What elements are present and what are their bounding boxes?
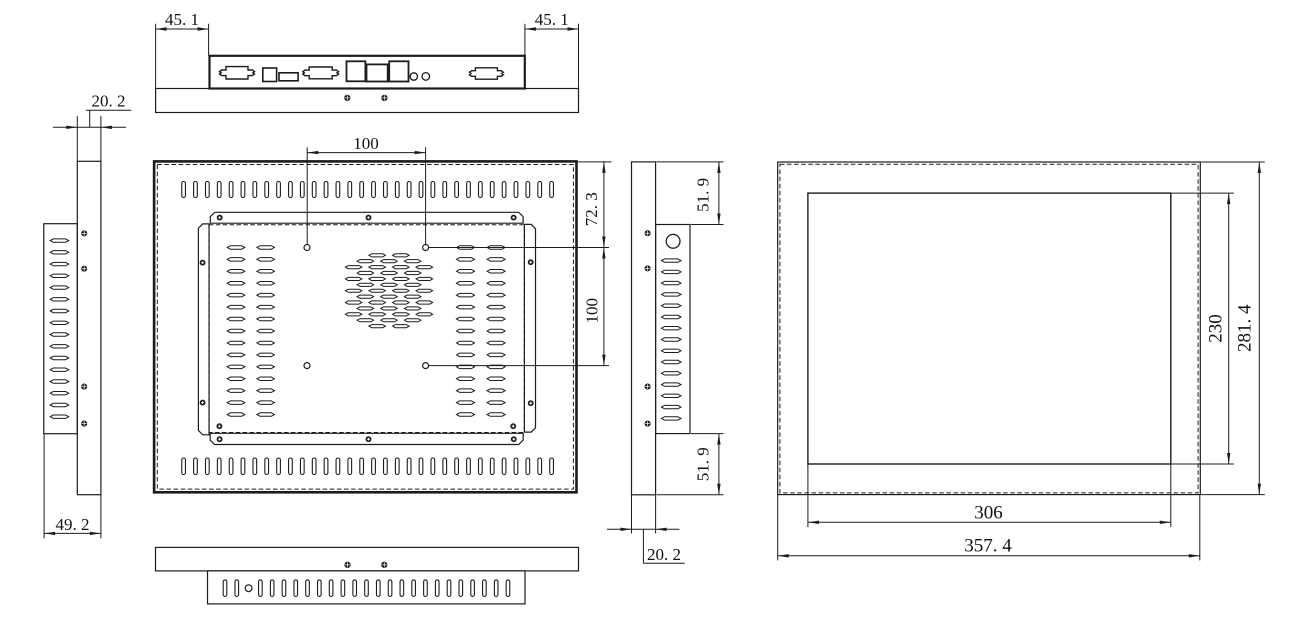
svg-text:20. 2: 20. 2 [92, 92, 126, 111]
svg-text:100: 100 [583, 298, 602, 324]
svg-text:72. 3: 72. 3 [582, 192, 601, 226]
svg-text:20. 2: 20. 2 [647, 545, 681, 564]
svg-text:45. 1: 45. 1 [535, 10, 569, 29]
svg-text:230: 230 [1206, 314, 1227, 343]
svg-text:49. 2: 49. 2 [56, 515, 90, 534]
svg-text:100: 100 [353, 134, 379, 153]
svg-text:51. 9: 51. 9 [694, 178, 713, 212]
svg-text:45. 1: 45. 1 [165, 10, 199, 29]
svg-text:51. 9: 51. 9 [694, 447, 713, 481]
svg-text:357. 4: 357. 4 [964, 536, 1012, 557]
svg-text:281. 4: 281. 4 [1235, 304, 1256, 352]
svg-text:306: 306 [974, 503, 1003, 524]
